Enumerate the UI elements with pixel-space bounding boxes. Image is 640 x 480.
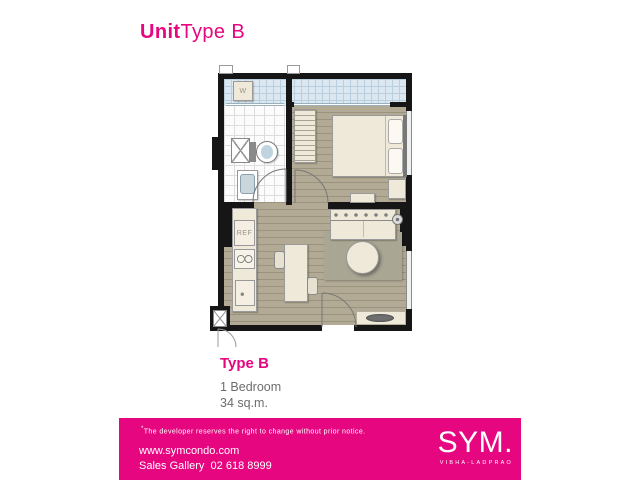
sym-logo-text: SYM. <box>438 428 513 458</box>
unit-info: Type B 1 Bedroom 34 sq.m. <box>220 355 281 411</box>
wall-balcony-stub-left <box>290 102 294 107</box>
laundry-glass-door <box>226 103 284 106</box>
wall-bedroom-living <box>328 202 412 209</box>
service-shaft <box>231 138 250 163</box>
column-mark-left <box>219 65 233 74</box>
title-unit: Unit <box>140 21 180 43</box>
refrigerator: REF <box>234 220 255 246</box>
sales-gallery-line: Sales Gallery 02 618 8999 <box>139 459 272 474</box>
living-window <box>406 251 412 309</box>
sym-logo: SYM. VIBHA-LADPRAO <box>438 428 513 466</box>
wall-bottom-right <box>354 325 412 331</box>
wall-bathroom-bedroom <box>286 79 292 205</box>
sofa-back-cushions <box>331 210 395 221</box>
coffee-table <box>346 241 379 274</box>
footer-bar: *The developer reserves the right to cha… <box>119 418 521 480</box>
unit-bedrooms: 1 Bedroom <box>220 379 281 395</box>
wardrobe <box>294 109 316 163</box>
dining-table <box>284 244 308 302</box>
sym-logo-subtext: VIBHA-LADPRAO <box>438 460 513 466</box>
website-link[interactable]: www.symcondo.com <box>139 444 272 459</box>
toilet-bowl-inner <box>261 145 273 159</box>
sofa <box>330 209 396 240</box>
tv-console <box>350 193 375 203</box>
floor-lamp <box>392 214 403 225</box>
balcony-glass-door <box>294 103 390 106</box>
refrigerator-label: REF <box>235 221 254 245</box>
floor-plan: W REF <box>210 65 425 350</box>
unit-area: 34 sq.m. <box>220 395 281 411</box>
dining-chair <box>307 277 318 295</box>
stove <box>234 249 255 269</box>
wall-left-block-kitchen <box>218 203 232 247</box>
disclaimer-body: The developer reserves the right to chan… <box>144 428 366 435</box>
dining-chair <box>274 251 285 269</box>
title-type: Type B <box>180 21 245 43</box>
washing-machine: W <box>233 81 253 101</box>
pillow <box>388 148 403 174</box>
wall-left-block-upper <box>212 137 224 170</box>
pillow <box>388 119 403 144</box>
washing-machine-label: W <box>234 82 252 100</box>
footer-contact: www.symcondo.com Sales Gallery 02 618 89… <box>139 444 272 474</box>
sales-gallery-label: Sales Gallery <box>139 460 204 472</box>
doormat <box>366 314 394 322</box>
bathroom-sink <box>240 174 255 194</box>
column-mark-right <box>287 65 300 74</box>
wall-top <box>218 73 412 79</box>
sales-phone[interactable]: 02 618 8999 <box>211 460 272 472</box>
headboard <box>403 115 407 177</box>
disclaimer-text: *The developer reserves the right to cha… <box>141 426 365 435</box>
wall-bottom-left <box>218 325 322 331</box>
nightstand <box>388 179 406 199</box>
sofa-seat-divider <box>363 221 364 237</box>
kitchen-sink <box>235 280 255 306</box>
shaft-door <box>218 329 236 347</box>
corner-shaft <box>213 310 227 327</box>
unit-type-label: Type B <box>220 355 281 372</box>
page-title: UnitType B <box>140 21 245 44</box>
wall-balcony-stub-right <box>390 102 406 107</box>
